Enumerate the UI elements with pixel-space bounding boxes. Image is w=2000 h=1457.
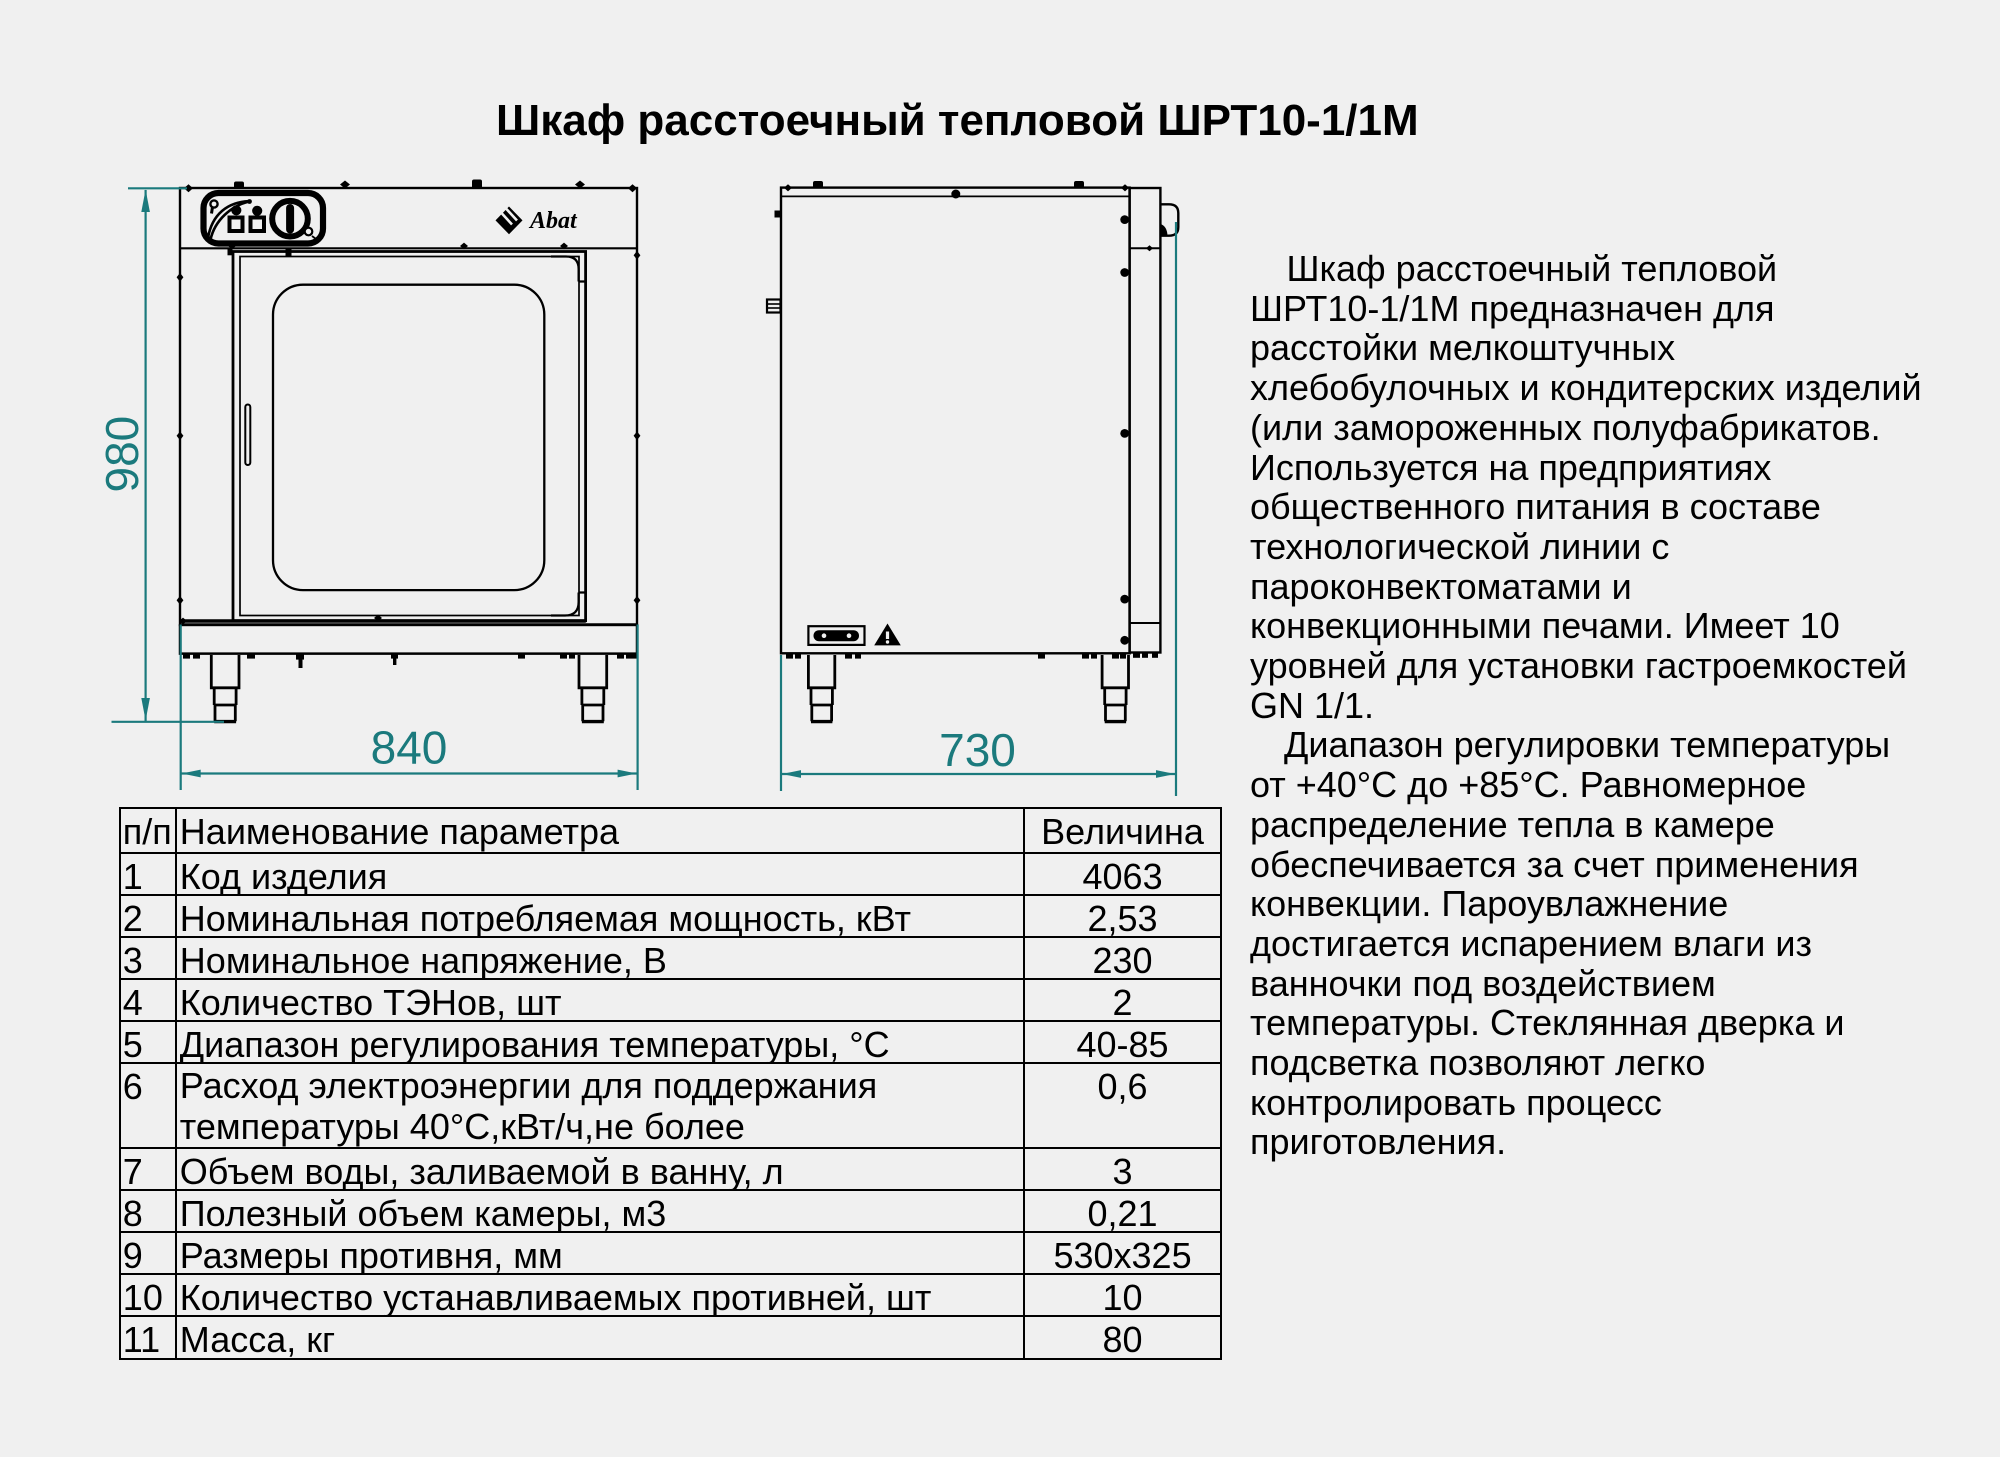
svg-text:980: 980 (96, 416, 148, 493)
svg-text:730: 730 (939, 724, 1016, 776)
svg-text:Abat: Abat (528, 208, 578, 234)
svg-text:840: 840 (371, 722, 448, 774)
